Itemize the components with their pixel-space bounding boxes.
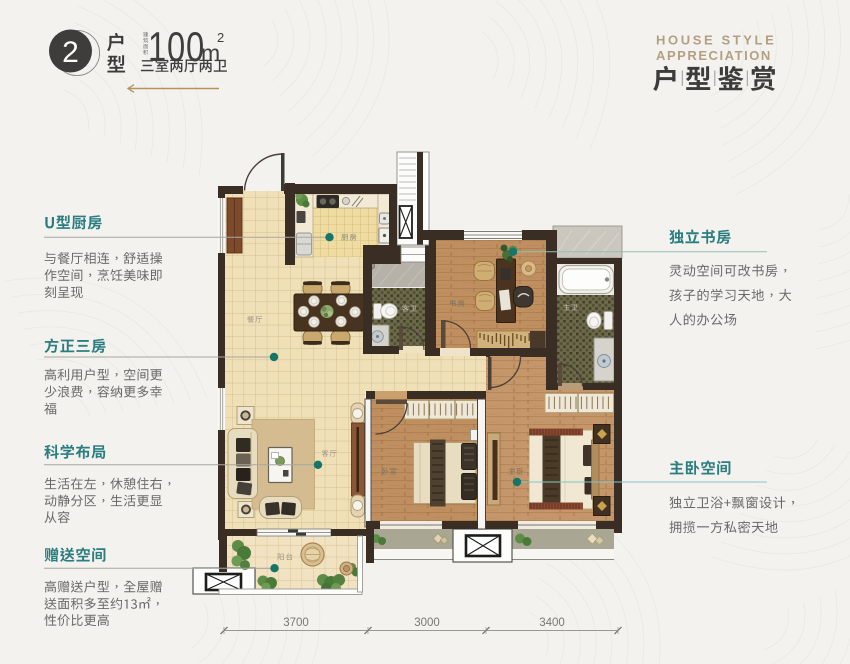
svg-text:3700: 3700 bbox=[283, 617, 309, 629]
svg-text:3400: 3400 bbox=[539, 617, 565, 629]
svg-text:3000: 3000 bbox=[414, 617, 440, 629]
svg-text:HOUSE STYLE: HOUSE STYLE bbox=[656, 33, 776, 48]
svg-text:2: 2 bbox=[217, 30, 224, 45]
svg-text:APPRECIATION: APPRECIATION bbox=[656, 48, 772, 63]
svg-text:2: 2 bbox=[62, 36, 79, 69]
